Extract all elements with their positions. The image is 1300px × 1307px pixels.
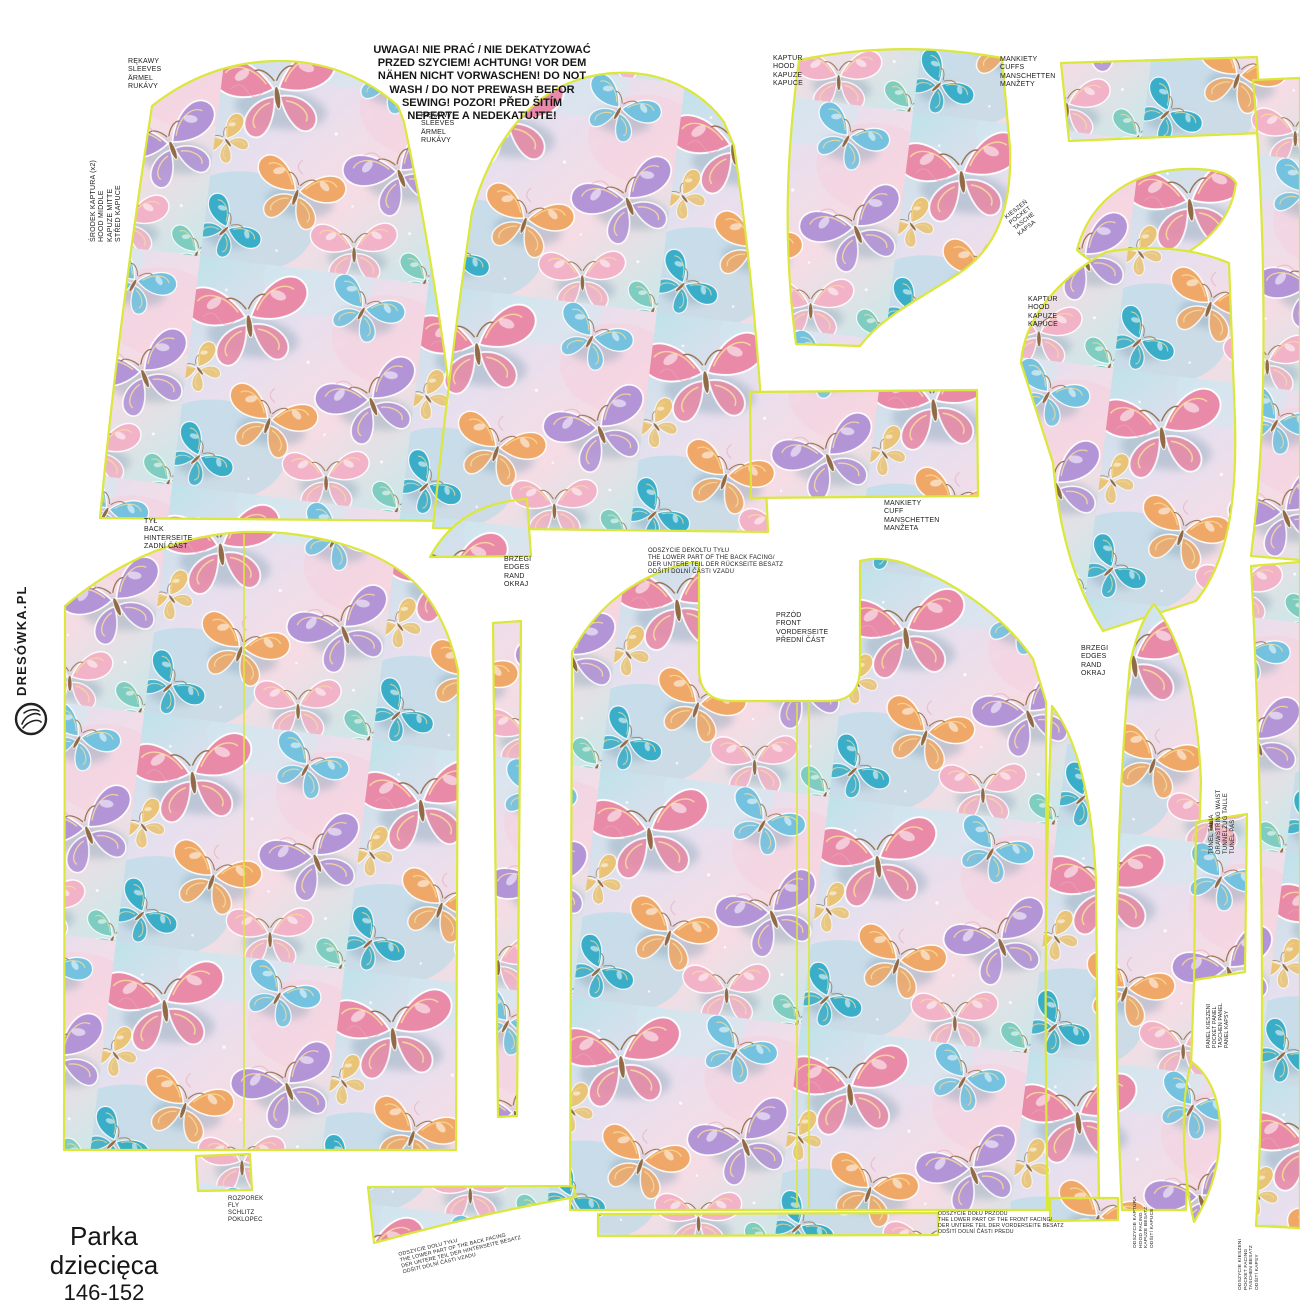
label-waist-tunnel: TUNEL TALIA DRAWSTRING WAIST TUNNELZUG T…: [1209, 748, 1237, 854]
label-front: PRZÓD FRONT VORDERSEITE PŘEDNÍ ČÁST: [776, 612, 828, 645]
piece-cuff-center: [750, 390, 978, 498]
pattern-panel-sheet: { "product": { "name": "Parka dziecięca"…: [0, 0, 1300, 1300]
label-sleeves-right: RĘKAWY SLEEVES ÄRMEL RUKÁVY: [421, 112, 454, 145]
label-edges-side: BRZEGI EDGES RAND OKRAJ: [1081, 645, 1108, 678]
piece-fly: [196, 1154, 252, 1191]
label-hood-middle: ŚRODEK KAPTURA (x2) HOOD MIDDLE KAPUZE M…: [90, 64, 123, 242]
piece-hem-strip-long: [598, 1213, 938, 1236]
brand-logo-icon: [12, 700, 50, 738]
label-hood-left: KAPTUR HOOD KAPUZE KAPUCE: [773, 55, 803, 88]
label-cuffs-center: MANKIETY CUFF MANSCHETTEN MANŽETA: [884, 500, 939, 533]
piece-pocket-panel-right: [1251, 562, 1300, 1228]
prewash-warning: UWAGA! NIE PRAĆ / NIE DEKATYZOWAĆ PRZED …: [366, 44, 598, 123]
label-pocket-facing: ODSZYCIE KIESZENI POCKET FACING TASCHEN …: [1238, 1194, 1261, 1290]
piece-hood-left: [788, 49, 1011, 346]
label-hood-right: KAPTUR HOOD KAPUZE KAPUCE: [1028, 296, 1058, 329]
label-cuffs-top: MANKIETY CUFFS MANSCHETTEN MANŽETY: [1000, 56, 1055, 89]
brand-logo-text: DRESÓWKA.PL: [14, 554, 29, 696]
piece-back: [64, 532, 458, 1150]
product-title-block: Parka dziecięca 146-152: [14, 1222, 194, 1307]
label-edges-front: BRZEGI EDGES RAND OKRAJ: [504, 556, 531, 589]
piece-curve-small-right: [1184, 1062, 1220, 1222]
label-back-neck-facing: ODSZYCIE DEKOLTU TYŁU THE LOWER PART OF …: [648, 548, 898, 576]
piece-edge-strip-top-right: [1251, 78, 1300, 560]
label-front-hem-facing: ODSZYCIE DOŁU PRZODU THE LOWER PART OF T…: [938, 1211, 1098, 1236]
piece-cuff-strip-top: [1061, 57, 1261, 141]
label-back: TYŁ BACK HINTERSEITE ZADNÍ ČÁST: [144, 518, 192, 551]
label-hood-facing: ODSZYCIE KAPTURA HOOD FACING KAPUZE BESA…: [1133, 1196, 1156, 1248]
label-pocket-panel: PANEL KIESZENI POCKET PANEL TASCHEN PANE…: [1206, 986, 1231, 1048]
label-sleeves-left: RĘKAWY SLEEVES ÄRMEL RUKÁVY: [128, 58, 161, 91]
label-fly: ROZPOREK FLY SCHLITZ POKLOPEC: [228, 1196, 263, 1224]
product-size-range: 146-152: [14, 1280, 194, 1306]
piece-sleeve-left: [100, 61, 464, 521]
piece-side-strip-a: [1046, 706, 1099, 1210]
product-name: Parka dziecięca: [14, 1222, 194, 1280]
piece-edge-strip-front: [493, 621, 521, 1117]
piece-sleeve-right: [433, 73, 768, 532]
